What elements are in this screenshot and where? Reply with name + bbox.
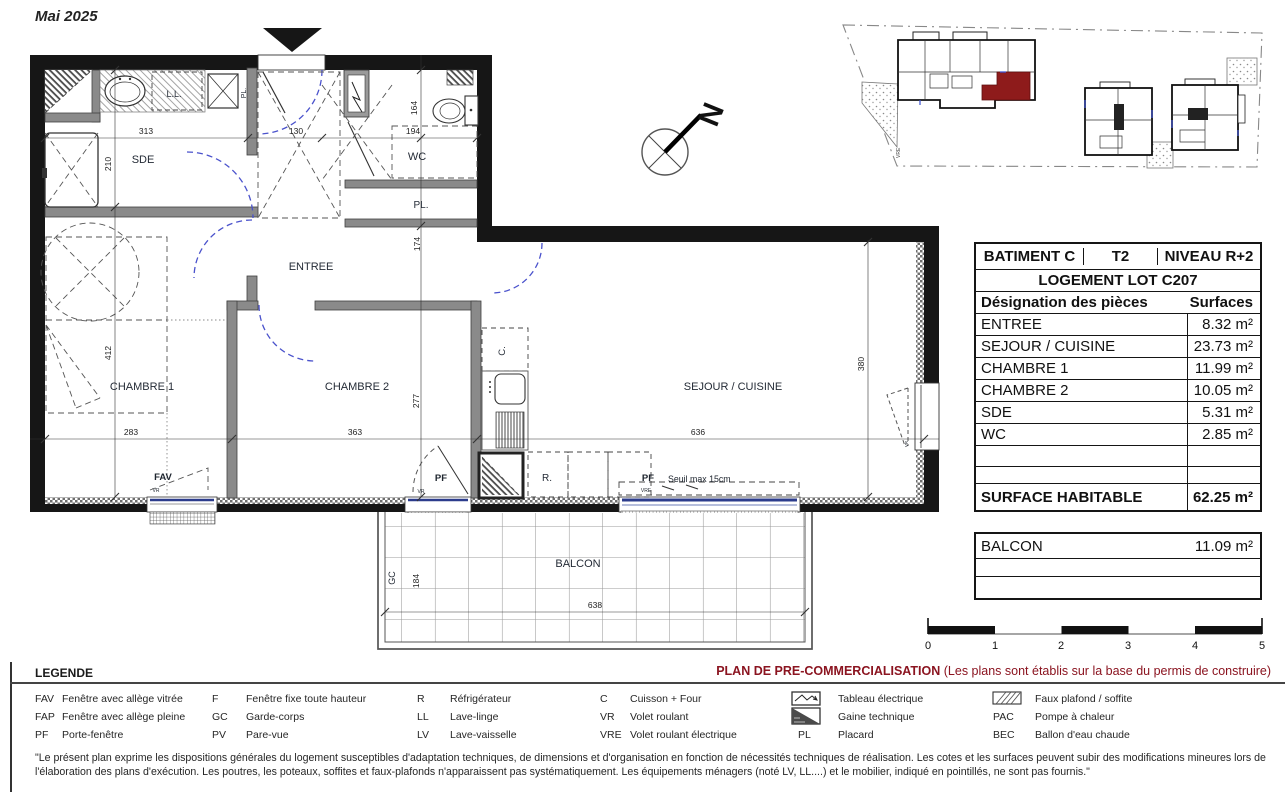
legend-label: Faux plafond / soffite	[1035, 693, 1132, 705]
legend-abbr: PL	[798, 729, 811, 741]
empty-row	[976, 576, 1260, 598]
scale-1: 1	[992, 640, 998, 652]
row-value: 2.85 m²	[1187, 424, 1260, 445]
ceiling-dotted	[167, 320, 227, 497]
room-label-balcon: BALCON	[555, 558, 600, 570]
annot-pf-sejour: PF	[642, 473, 654, 484]
legend-label: Gaine technique	[838, 711, 914, 723]
batiment-cell: BATIMENT C	[976, 248, 1084, 265]
legend-rule	[10, 682, 1285, 684]
scale-5: 5	[1259, 640, 1265, 652]
legend-abbr: VRE	[600, 729, 622, 741]
wc-door-leaf	[348, 122, 374, 176]
bathroom-fixtures	[42, 70, 238, 207]
window-fav-chambre1	[147, 497, 217, 524]
row-value: 11.99 m²	[1187, 358, 1260, 379]
legend-abbr: LV	[417, 729, 429, 741]
legend-label: Pompe à chaleur	[1035, 711, 1114, 723]
row-label: CHAMBRE 2	[976, 382, 1187, 399]
legend-label: Pare-vue	[246, 729, 289, 741]
row-value: 23.73 m²	[1187, 336, 1260, 357]
chambre1-door-swing	[194, 220, 252, 278]
row-label: SDE	[976, 404, 1187, 421]
gaine-sejour	[479, 453, 523, 498]
site-plan: VRE	[843, 25, 1262, 168]
balcony-table: BALCON 11.09 m²	[974, 532, 1262, 600]
total-row: SURFACE HABITABLE 62.25 m²	[976, 483, 1260, 510]
columns-header-row: Désignation des pièces Surfaces	[976, 291, 1260, 313]
legend-abbr: R	[417, 693, 425, 705]
surfaces-header: Surfaces	[1187, 292, 1260, 313]
entrance-arrow	[263, 28, 322, 52]
legend-label: Volet roulant électrique	[630, 729, 737, 741]
chambre2-door-swing	[259, 305, 315, 361]
scale-4: 4	[1192, 640, 1198, 652]
row-value: 8.32 m²	[1187, 314, 1260, 335]
room-label-entree: ENTREE	[289, 261, 334, 273]
site-building-b	[1085, 82, 1152, 155]
room-label-chambre2: CHAMBRE 2	[325, 381, 389, 393]
empty-row	[976, 558, 1260, 576]
site-building-c	[898, 32, 1035, 108]
dim-412: 412	[103, 346, 113, 360]
legend-label: Fenêtre avec allège pleine	[62, 711, 185, 723]
room-label-pl-sde: PL.	[241, 88, 248, 99]
legend-abbr: PF	[35, 729, 48, 741]
table-row: WC 2.85 m²	[976, 423, 1260, 445]
window-annotations: FAV PF PF Seuil max 15cm VR VR VRE VR	[153, 440, 909, 495]
legend-label: Lave-vaisselle	[450, 729, 517, 741]
dim-174: 174	[412, 237, 422, 251]
legend-abbr: GC	[212, 711, 228, 723]
technical-shaft-corner	[45, 70, 92, 113]
room-label-pl-wc: PL.	[413, 200, 428, 211]
faux-plafond-icon	[992, 691, 1022, 705]
balcony	[378, 512, 812, 649]
empty-row	[976, 466, 1260, 483]
dim-194: 194	[406, 126, 420, 136]
dim-363: 363	[348, 427, 362, 437]
room-label-wc: WC	[408, 151, 426, 163]
legend-abbr: BEC	[993, 729, 1015, 741]
site-building-a	[1172, 79, 1245, 150]
dim-283: 283	[124, 427, 138, 437]
legend-abbr: LL	[417, 711, 429, 723]
row-value: 5.31 m²	[1187, 402, 1260, 423]
dim-210: 210	[103, 157, 113, 171]
table-row: CHAMBRE 1 11.99 m²	[976, 357, 1260, 379]
wc-ceiling-dashed	[392, 126, 477, 178]
dim-184: 184	[411, 574, 421, 588]
window-pf-chambre2	[405, 446, 471, 524]
label-lave-linge: L.L.	[166, 89, 181, 99]
north-label: N	[691, 98, 730, 130]
toilet	[433, 96, 478, 125]
annot-seuil: Seuil max 15cm	[668, 474, 731, 484]
balcon-label: BALCON	[976, 538, 1187, 555]
annot-pf-ch2: PF	[435, 473, 447, 484]
legend-abbr: F	[212, 693, 218, 705]
table-row: SEJOUR / CUISINE 23.73 m²	[976, 335, 1260, 357]
empty-row	[976, 445, 1260, 466]
shower	[42, 133, 98, 207]
legend-abbr: FAV	[35, 693, 54, 705]
tableau-electrique-icon	[791, 691, 821, 706]
room-label-sde: SDE	[132, 154, 155, 166]
row-value: 10.05 m²	[1187, 380, 1260, 401]
row-label: ENTREE	[976, 316, 1187, 333]
legend-label: Réfrigérateur	[450, 693, 511, 705]
label-cuisson: C.	[497, 346, 508, 356]
electrical-panel	[344, 70, 369, 117]
legend-label: Placard	[838, 729, 874, 741]
legend-label: Porte-fenêtre	[62, 729, 123, 741]
legend-label: Tableau électrique	[838, 693, 923, 705]
scale-3: 3	[1125, 640, 1131, 652]
lot-row: LOGEMENT LOT C207	[976, 269, 1260, 291]
closet-sde	[208, 74, 238, 108]
table-row: SDE 5.31 m²	[976, 401, 1260, 423]
plan-type-banner: PLAN DE PRE-COMMERCIALISATION (Les plans…	[716, 664, 1271, 678]
dim-277: 277	[411, 394, 421, 408]
dim-380: 380	[856, 357, 866, 371]
legend-abbr: PV	[212, 729, 226, 741]
legend-title: LEGENDE	[35, 666, 93, 680]
legend-label: Lave-linge	[450, 711, 498, 723]
row-label: SEJOUR / CUISINE	[976, 338, 1187, 355]
surface-table: BATIMENT C T2 NIVEAU R+2 LOGEMENT LOT C2…	[974, 242, 1262, 512]
gaine-wc	[447, 70, 473, 85]
legend-abbr: PAC	[993, 711, 1014, 723]
plan-type-note: (Les plans sont établis sur la base du p…	[944, 664, 1271, 678]
legend-label: Ballon d'eau chaude	[1035, 729, 1130, 741]
room-label-chambre1: CHAMBRE 1	[110, 381, 174, 393]
annot-vr-fav: VR	[153, 488, 160, 494]
legend-abbr: VR	[600, 711, 615, 723]
dim-164: 164	[409, 101, 419, 115]
washbasin	[105, 76, 145, 106]
row-label: CHAMBRE 1	[976, 360, 1187, 377]
legend-label: Cuisson + Four	[630, 693, 702, 705]
dim-130: 130	[289, 126, 303, 136]
legend-label: Garde-corps	[246, 711, 304, 723]
plan-type-title: PLAN DE PRE-COMMERCIALISATION	[716, 664, 940, 678]
dishwasher-grille	[496, 412, 524, 448]
entrance-door	[258, 55, 325, 113]
label-refrigerateur: R.	[542, 473, 552, 484]
total-label: SURFACE HABITABLE	[976, 489, 1187, 506]
room-label-sejour: SEJOUR / CUISINE	[684, 381, 782, 393]
scale-bar: 0 1 2 3 4 5	[925, 618, 1265, 652]
legend-abbr: C	[600, 693, 608, 705]
disclaimer-text: "Le présent plan exprime les disposition…	[35, 752, 1273, 780]
window-sejour-east	[887, 383, 939, 450]
legend-label: Volet roulant	[630, 711, 688, 723]
dim-638: 638	[588, 600, 602, 610]
row-label: WC	[976, 426, 1187, 443]
dim-636: 636	[691, 427, 705, 437]
annot-fav: FAV	[154, 472, 172, 483]
table-header-row: BATIMENT C T2 NIVEAU R+2	[976, 244, 1260, 269]
balcon-value: 11.09 m²	[1187, 534, 1260, 558]
designation-header: Désignation des pièces	[976, 294, 1187, 311]
annot-vr-ch2: VR	[418, 489, 425, 495]
dim-313: 313	[139, 126, 153, 136]
scale-0: 0	[925, 640, 931, 652]
table-row: CHAMBRE 2 10.05 m²	[976, 379, 1260, 401]
sejour-door-swing	[492, 243, 542, 293]
legend-abbr: FAP	[35, 711, 55, 723]
legend-label: Fenêtre avec allège vitrée	[62, 693, 183, 705]
scale-2: 2	[1058, 640, 1064, 652]
balcon-row: BALCON 11.09 m²	[976, 534, 1260, 558]
niveau-cell: NIVEAU R+2	[1158, 248, 1260, 265]
table-row: ENTREE 8.32 m²	[976, 313, 1260, 335]
annot-vre-sejour: VRE	[641, 488, 652, 494]
site-vre-label: VRE	[896, 147, 902, 158]
total-value: 62.25 m²	[1187, 484, 1260, 510]
annot-vr-east: VR	[904, 440, 909, 447]
type-cell: T2	[1084, 248, 1158, 265]
legend-label: Fenêtre fixe toute hauteur	[246, 693, 366, 705]
label-garde-corps: GC	[387, 571, 397, 585]
compass: N	[642, 98, 729, 175]
gaine-technique-icon	[791, 707, 821, 725]
